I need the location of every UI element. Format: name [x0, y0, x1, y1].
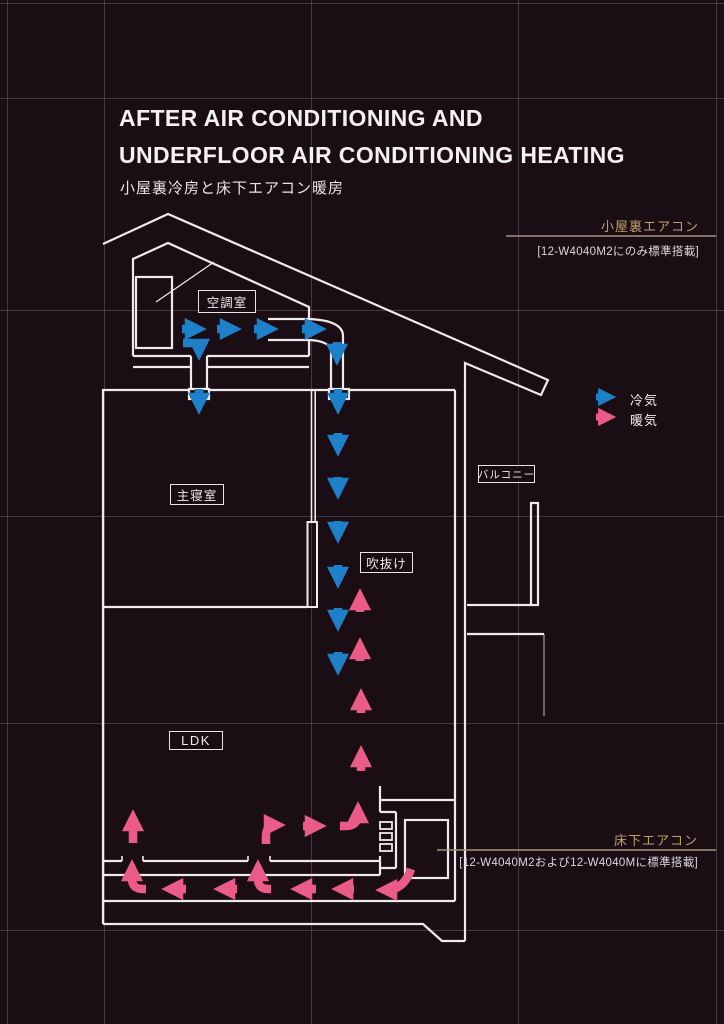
- atrium-wall-lower: [308, 522, 318, 607]
- grille-slat: [380, 844, 392, 851]
- room-label-ac-room-text: 空調室: [207, 292, 248, 311]
- first-floor-line: [103, 861, 380, 875]
- page-title-line1: AFTER AIR CONDITIONING AND: [119, 105, 483, 132]
- room-label-balcony-text: バルコニー: [478, 467, 535, 482]
- room-label-master-bedroom: 主寝室: [170, 484, 224, 505]
- attic-ac-callout-label: 小屋裏エアコン: [601, 216, 699, 235]
- room-label-atrium: 吹抜け: [360, 552, 413, 573]
- legend-arrows: [596, 397, 609, 417]
- house-outline: [103, 214, 548, 941]
- foundation-line: [103, 924, 465, 941]
- attic-ac-callout-spec: [12-W4040M2にのみ標準搭載]: [537, 243, 699, 259]
- room-label-atrium-text: 吹抜け: [366, 553, 407, 572]
- room-label-ldk-text: LDK: [181, 733, 211, 748]
- legend-warm-label: 暖気: [630, 410, 658, 429]
- page-subtitle: 小屋裏冷房と床下エアコン暖房: [120, 177, 344, 198]
- underfloor-ac-callout-spec: [12-W4040M2および12-W4040Mに標準搭載]: [459, 854, 698, 870]
- grille-slat: [380, 833, 392, 840]
- balcony-railing: [531, 503, 538, 605]
- attic-floor: [133, 356, 309, 367]
- room-label-master-bedroom-text: 主寝室: [177, 485, 218, 504]
- attic-ac-unit: [136, 277, 172, 348]
- room-label-ac-room: 空調室: [198, 290, 256, 313]
- leader-lines: [156, 236, 716, 850]
- legend-cold-label: 冷気: [630, 390, 658, 409]
- ac-alcove: [380, 786, 455, 875]
- grille-slat: [380, 822, 392, 829]
- brochure-page: AFTER AIR CONDITIONING AND UNDERFLOOR AI…: [0, 0, 724, 1024]
- underfloor-ac-callout-label: 床下エアコン: [614, 830, 698, 849]
- page-title-line2: UNDERFLOOR AIR CONDITIONING HEATING: [119, 142, 625, 169]
- roof-and-right-wall: [103, 214, 548, 941]
- room-label-balcony: バルコニー: [478, 465, 535, 483]
- room-label-ldk: LDK: [169, 731, 223, 750]
